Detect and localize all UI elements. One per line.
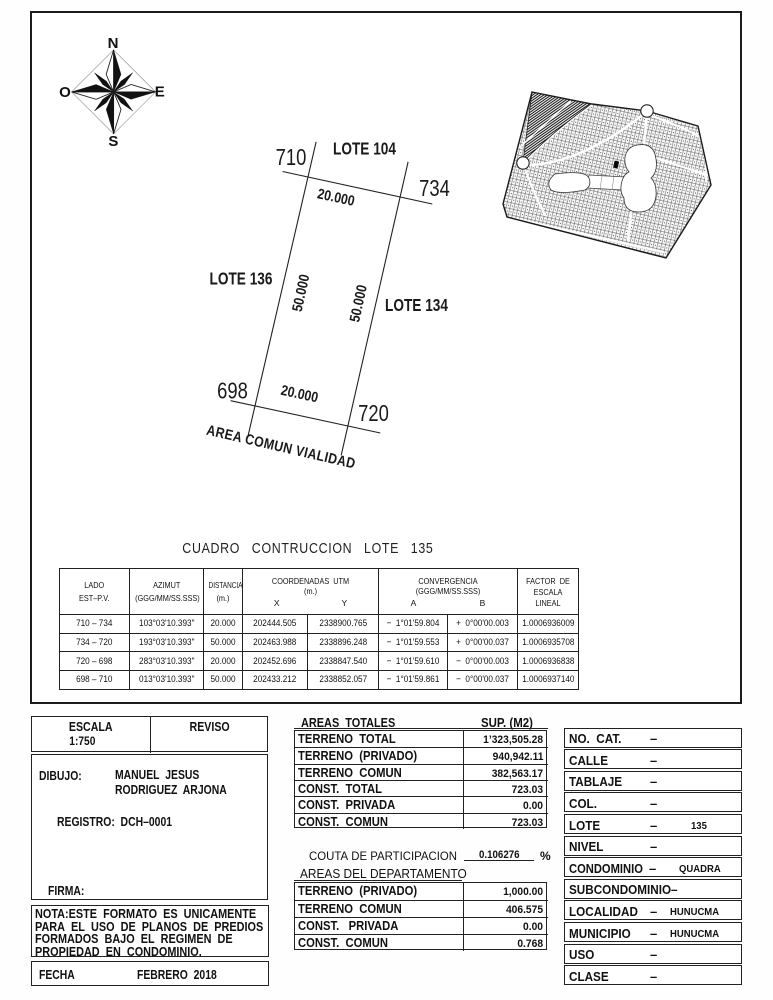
svg-text:20.000: 20.000 (279, 382, 319, 406)
svg-text:E: E (155, 84, 165, 101)
svg-text:710: 710 (276, 145, 307, 170)
svg-text:20.000: 20.000 (316, 185, 356, 209)
svg-text:734: 734 (419, 176, 450, 201)
svg-text:50.000: 50.000 (289, 273, 313, 313)
svg-text:698: 698 (217, 379, 248, 404)
svg-text:N: N (108, 35, 119, 52)
svg-text:LOTE 104: LOTE 104 (333, 140, 396, 159)
svg-text:O: O (59, 84, 71, 101)
svg-text:720: 720 (358, 401, 389, 426)
svg-text:AREA COMUN VIALIDAD: AREA COMUN VIALIDAD (205, 422, 357, 472)
svg-text:LOTE 134: LOTE 134 (385, 297, 448, 316)
svg-text:50.000: 50.000 (346, 283, 370, 323)
svg-text:S: S (108, 133, 118, 150)
svg-text:LOTE 136: LOTE 136 (210, 270, 273, 289)
